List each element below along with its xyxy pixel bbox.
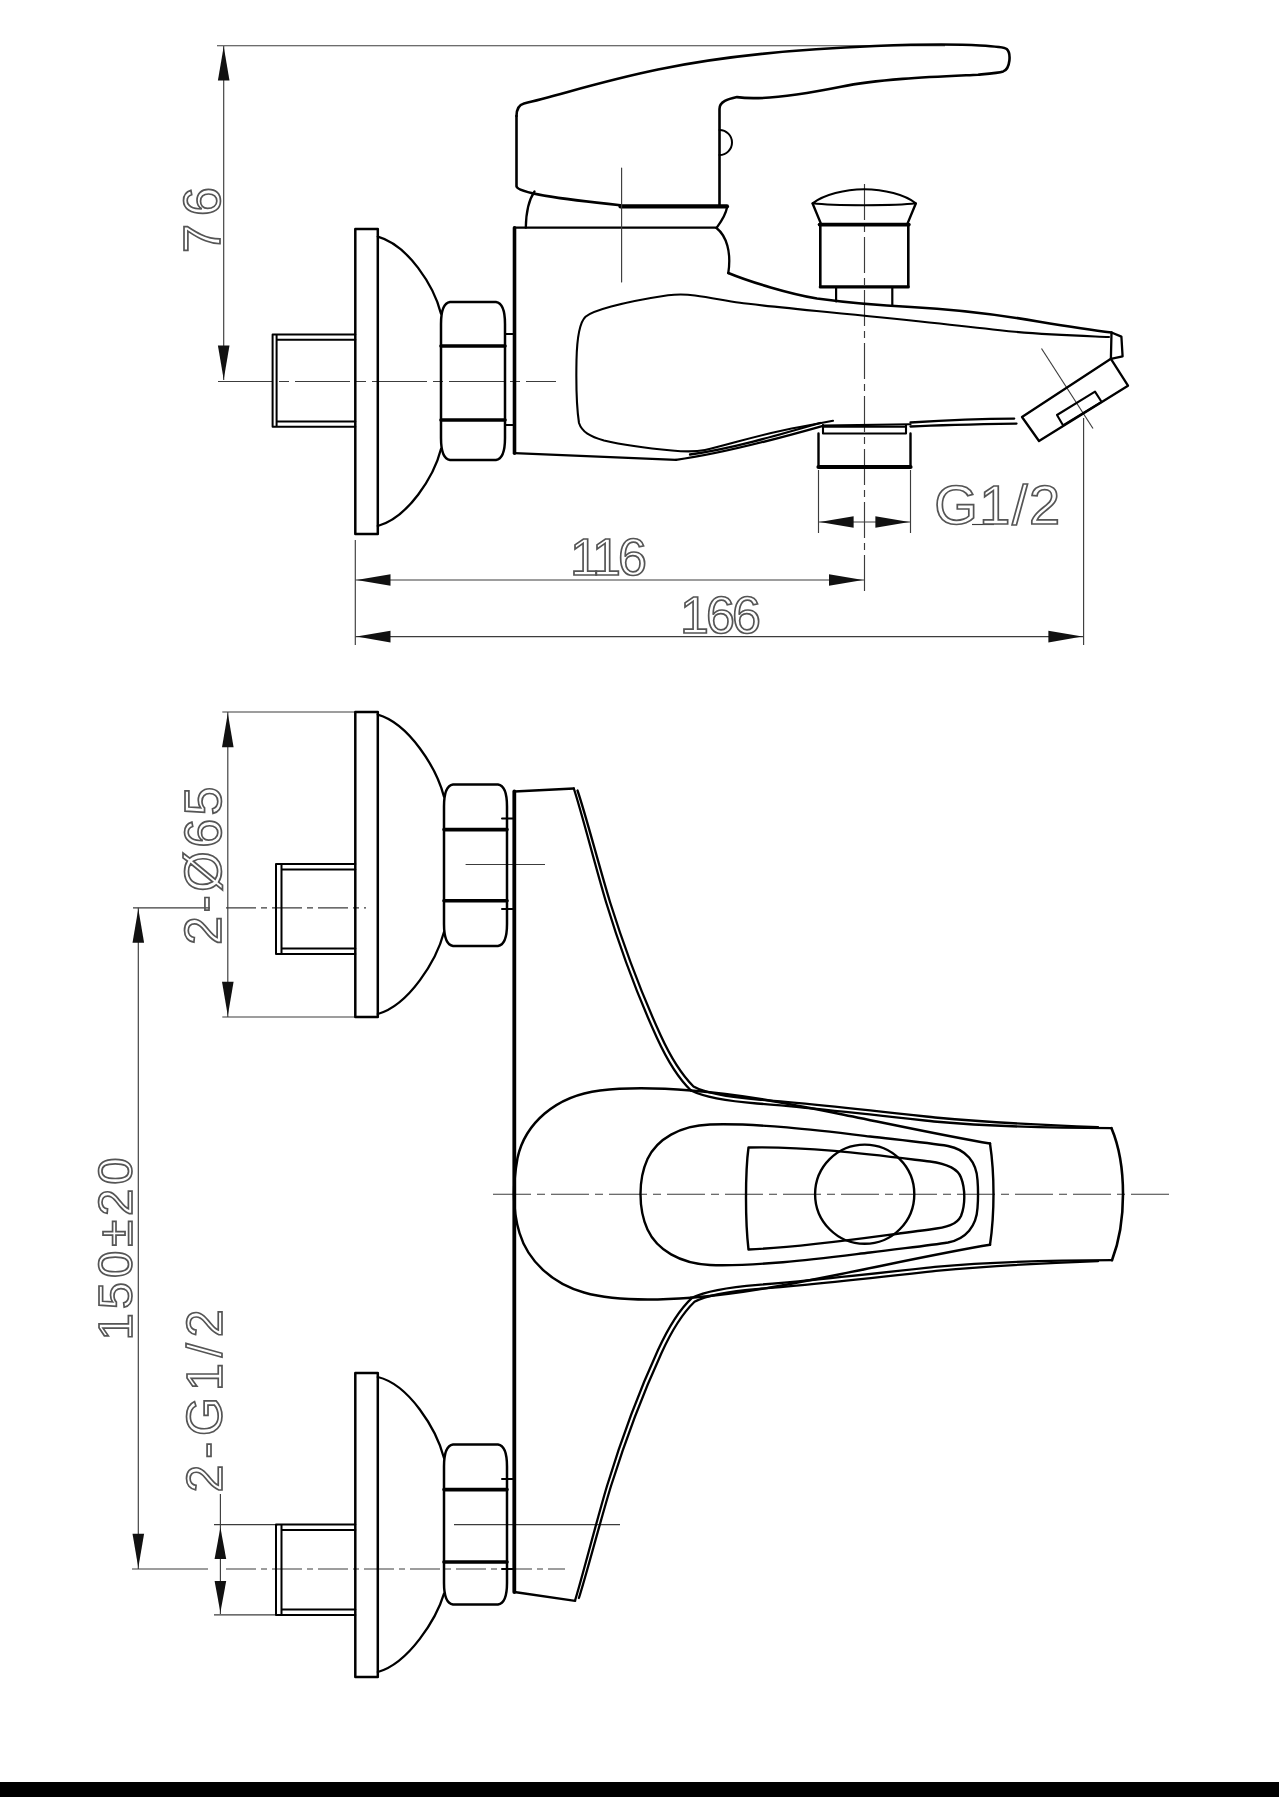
svg-text:2-Ø65: 2-Ø65 <box>174 783 232 945</box>
svg-text:150±20: 150±20 <box>88 1153 142 1340</box>
svg-text:2-G1/2: 2-G1/2 <box>177 1304 233 1493</box>
svg-text:116: 116 <box>570 528 645 586</box>
svg-text:G1/2: G1/2 <box>934 473 1061 536</box>
svg-text:166: 166 <box>680 586 759 644</box>
svg-text:76: 76 <box>173 179 231 253</box>
